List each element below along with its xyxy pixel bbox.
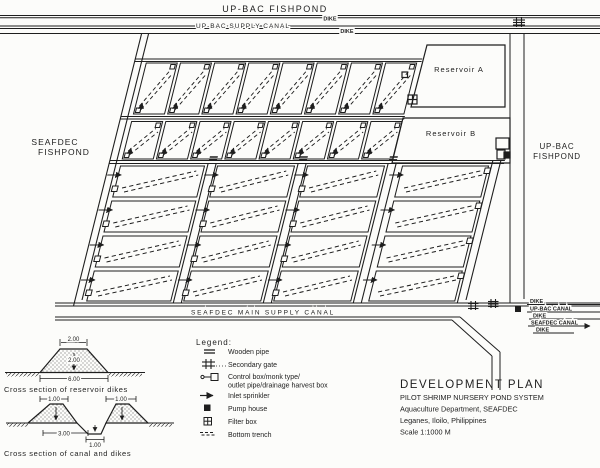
nursery-pond xyxy=(168,63,212,114)
legend-label: Bottom trench xyxy=(228,432,272,439)
control-box-icon xyxy=(103,221,110,227)
grow-out-pond xyxy=(84,236,187,267)
control-box-icon xyxy=(360,123,366,128)
control-box-icon xyxy=(458,273,465,279)
control-box-icon xyxy=(290,221,297,227)
right-canal-labels: DIKE UP-BAC CANAL DIKE SEAFDEC CANAL DIK… xyxy=(527,299,600,334)
control-box-icon xyxy=(191,256,198,262)
control-box-icon xyxy=(85,290,92,296)
legend-label: outlet pipe/drainage harvest box xyxy=(228,383,328,390)
wooden-pipe-icon xyxy=(204,350,215,353)
legend-label: Inlet sprinkler xyxy=(228,393,270,400)
nursery-pond xyxy=(293,122,333,160)
nursery-pond xyxy=(259,122,299,160)
control-box-icon xyxy=(484,168,491,174)
control-box-icon xyxy=(402,72,408,78)
top-canal xyxy=(0,16,600,34)
secondary-gate-icon xyxy=(513,17,525,27)
legend-label: Control box/monk type/ xyxy=(228,374,300,381)
nursery-pond xyxy=(373,63,417,114)
nursery-pond xyxy=(305,63,349,114)
control-box-icon xyxy=(475,203,482,209)
top-supply-canal-label: UP-BAC SUPPLY CANAL xyxy=(196,23,290,30)
control-box-icon xyxy=(292,123,298,128)
grow-out-pond xyxy=(199,166,295,197)
control-box-icon xyxy=(94,256,101,262)
control-box-icon xyxy=(155,123,161,128)
right-fishpond-label-2: FISHPOND xyxy=(533,152,581,161)
grow-out-pond xyxy=(358,271,465,301)
top-dike-label-2: DIKE xyxy=(340,29,353,35)
filter-box-icon xyxy=(408,95,417,104)
plan-department: Aquaculture Department, SEAFDEC xyxy=(400,405,518,414)
grow-out-pond xyxy=(366,236,473,267)
pump-house-icon xyxy=(204,405,211,412)
grow-out-pond xyxy=(181,236,277,267)
grow-out-pond xyxy=(289,166,385,197)
control-box-icon xyxy=(281,256,288,262)
secondary-gate-icon xyxy=(468,301,479,310)
grow-out-pond xyxy=(173,271,269,301)
nursery-pond xyxy=(202,63,246,114)
plan-title: DEVELOPMENT PLAN xyxy=(400,379,544,391)
left-fishpond-label-1: SEAFDEC xyxy=(31,137,78,147)
nursery-pond xyxy=(362,122,402,160)
dike-profile xyxy=(106,404,148,423)
control-box-icon xyxy=(307,65,313,70)
right-fishpond-label-1: UP-BAC xyxy=(539,142,574,151)
pond-field xyxy=(74,34,537,306)
control-box-icon xyxy=(201,374,218,381)
plan-drawing: UP-BAC FISHPOND DIKE UP-BAC SUPPLY CANAL… xyxy=(0,0,600,468)
canal-profile xyxy=(77,423,106,434)
dim-dike1-top: 1.00 xyxy=(48,397,60,403)
main-supply-canal-label: SEAFDEC MAIN SUPPLY CANAL xyxy=(191,310,335,317)
control-box-icon xyxy=(272,65,278,70)
left-fishpond-label-2: FISHPOND xyxy=(38,147,90,157)
secondary-gate-icon xyxy=(202,359,215,369)
plan-location: Leganes, Iloilo, Philippines xyxy=(400,416,487,425)
plan-scale: Scale 1:1000 M xyxy=(400,428,451,437)
cross-section-a-caption: Cross section of reservoir dikes xyxy=(4,385,128,394)
secondary-gate-icon xyxy=(488,299,499,308)
top-fishpond-label: UP-BAC FISHPOND xyxy=(222,4,328,14)
control-box-icon xyxy=(395,123,401,128)
dim-height: 2.00 xyxy=(68,358,80,364)
development-plan-sheet: UP-BAC FISHPOND DIKE UP-BAC SUPPLY CANAL… xyxy=(0,0,600,468)
legend-label: Pump house xyxy=(228,406,267,413)
cross-section-canal-dikes: 1.00 1.00 3.00 1.00 Cross section of can… xyxy=(4,396,174,458)
reservoir-b-label: Reservoir B xyxy=(426,129,476,138)
grow-out-pond xyxy=(102,166,205,197)
nursery-pond xyxy=(236,63,280,114)
control-box-icon xyxy=(208,186,215,192)
control-box-icon xyxy=(326,123,332,128)
control-box-icon xyxy=(111,186,118,192)
control-box-icon xyxy=(375,65,381,70)
control-box-icon xyxy=(466,238,473,244)
pump-house-icon xyxy=(504,152,510,158)
nursery-pond xyxy=(134,63,178,114)
control-box-icon xyxy=(204,65,210,70)
grow-out-pond xyxy=(263,271,359,301)
reservoir-b-outline xyxy=(392,118,510,163)
pump-station xyxy=(496,138,510,159)
control-box-icon xyxy=(238,65,244,70)
control-box-icon xyxy=(341,65,347,70)
grow-out-pond xyxy=(384,166,491,197)
dim-canal-span: 3.00 xyxy=(58,432,70,438)
grow-out-pond xyxy=(76,271,179,301)
grow-out-pond xyxy=(271,236,367,267)
control-box-icon xyxy=(272,290,279,296)
nursery-pond xyxy=(270,63,314,114)
legend: Legend: Wooden pipe Secondary gate Contr… xyxy=(196,338,328,439)
title-block: DEVELOPMENT PLAN PILOT SHRIMP NURSERY PO… xyxy=(400,379,544,437)
cross-section-reservoir-dikes: 2.00 2.00 6.00 Cross section of reservoi… xyxy=(4,337,145,394)
control-box-icon xyxy=(170,65,176,70)
reservoir-a-label: Reservoir A xyxy=(434,65,484,74)
control-box-icon xyxy=(182,290,189,296)
grow-out-pond xyxy=(375,201,482,232)
nursery-pond xyxy=(191,122,231,160)
grow-out-pond xyxy=(190,201,286,232)
control-box-icon xyxy=(224,123,230,128)
cross-section-b-caption: Cross section of canal and dikes xyxy=(4,449,131,458)
control-box-icon xyxy=(409,65,415,70)
plan-subtitle: PILOT SHRIMP NURSERY POND SYSTEM xyxy=(400,393,544,402)
bottom-trench-icon xyxy=(200,433,216,436)
dim-top-width: 2.00 xyxy=(68,337,80,343)
nursery-pond xyxy=(122,122,162,160)
legend-label: Wooden pipe xyxy=(228,349,269,356)
legend-label: Secondary gate xyxy=(228,362,277,369)
pump-house-icon xyxy=(515,306,521,312)
reservoir-a-outline xyxy=(411,45,505,107)
filter-box-icon xyxy=(204,418,212,426)
nursery-pond xyxy=(225,122,265,160)
right-boundary-canal xyxy=(510,34,524,304)
legend-title: Legend: xyxy=(196,338,232,347)
control-box-icon xyxy=(258,123,264,128)
legend-label: Filter box xyxy=(228,419,257,426)
control-box-icon xyxy=(298,186,305,192)
control-box-icon xyxy=(200,221,207,227)
nursery-pond xyxy=(156,122,196,160)
grow-out-pond xyxy=(280,201,376,232)
dim-base-width: 6.00 xyxy=(68,377,80,383)
nursery-pond xyxy=(339,63,383,114)
control-box-icon xyxy=(189,123,195,128)
nursery-pond xyxy=(327,122,367,160)
top-dike-label-1: DIKE xyxy=(323,17,336,23)
grow-out-pond xyxy=(93,201,196,232)
dim-dike2-top: 1.00 xyxy=(115,397,127,403)
dike-profile xyxy=(28,404,77,423)
